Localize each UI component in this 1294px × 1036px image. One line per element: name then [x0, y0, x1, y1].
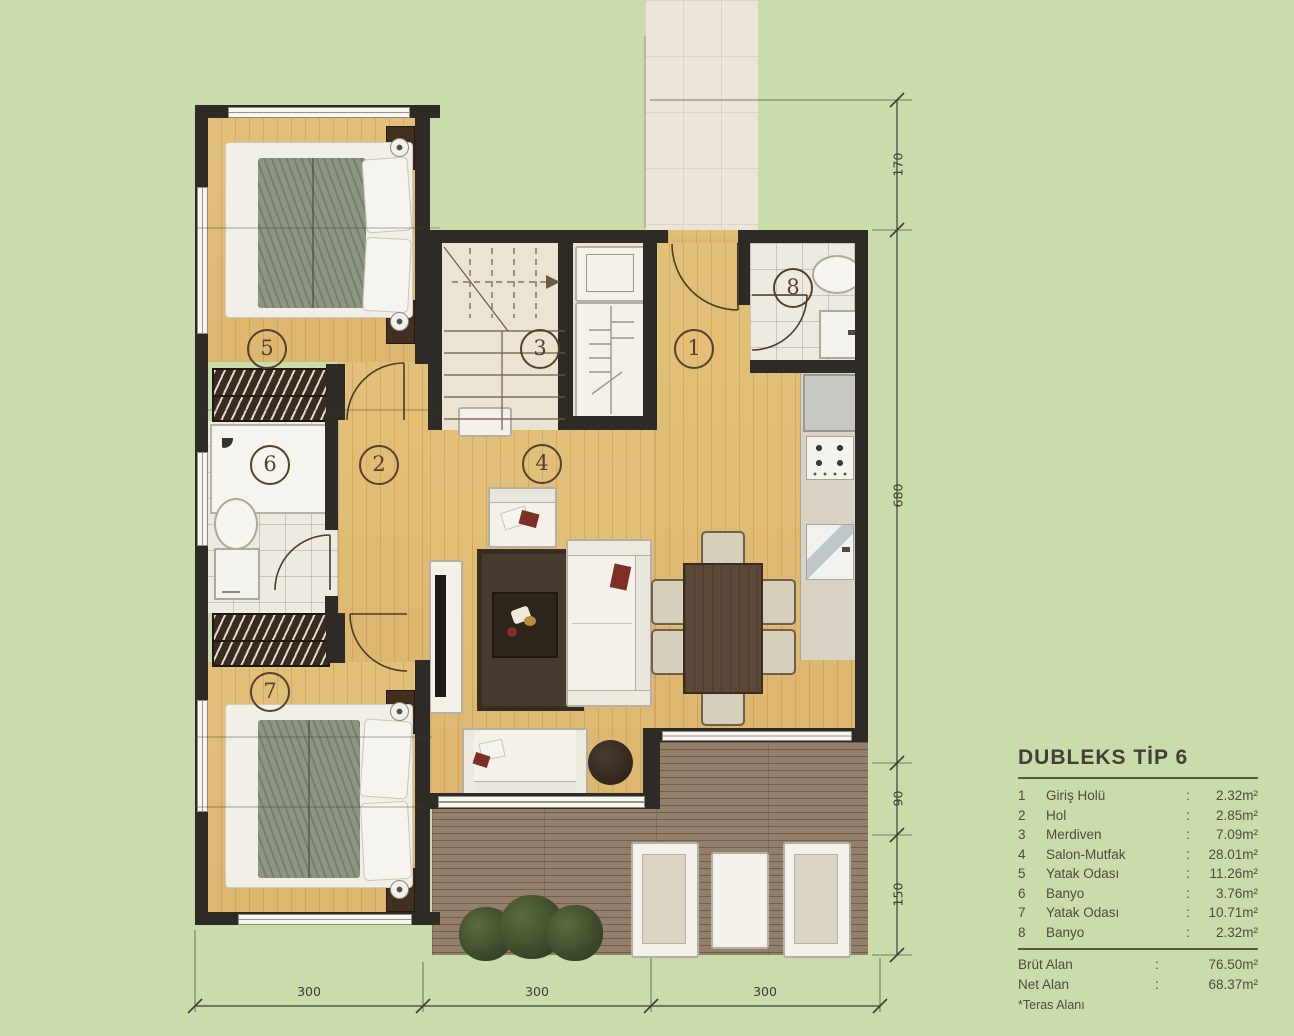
legend-colon: : — [1182, 788, 1194, 803]
floor-plan-canvas: 1 2 3 4 5 6 7 8 170 680 90 150 300 300 3… — [0, 0, 1294, 1036]
dim-label-90: 90 — [891, 784, 906, 814]
legend-row: 3 Merdiven : 7.09m² — [1018, 825, 1258, 845]
wall — [737, 243, 750, 305]
legend-room-num: 2 — [1018, 808, 1046, 823]
legend-room-area: 10.71m² — [1194, 905, 1258, 920]
window — [197, 700, 208, 812]
wall — [325, 420, 338, 530]
sofa-back — [635, 541, 650, 705]
wall — [565, 416, 643, 430]
sun-lounger — [631, 842, 699, 958]
loveseat — [462, 728, 588, 797]
legend-colon: : — [1182, 847, 1194, 862]
window — [238, 914, 412, 925]
legend-total-label: Net Alan — [1018, 977, 1151, 992]
sun-lounger — [783, 842, 851, 958]
legend-colon: : — [1151, 957, 1163, 972]
duvet-fold — [308, 720, 310, 878]
throw-pillow-red — [610, 563, 632, 590]
legend-room-num: 6 — [1018, 886, 1046, 901]
wall — [750, 360, 855, 373]
lamp-icon — [390, 880, 409, 899]
wall — [643, 728, 660, 809]
duvet-bedroom7 — [258, 720, 360, 878]
cooktop — [806, 436, 854, 480]
wardrobe-divider — [214, 640, 328, 642]
lounger-pad — [794, 854, 838, 944]
legend-total-value: 76.50m² — [1163, 957, 1258, 972]
room-circle-3: 3 — [520, 329, 560, 369]
faucet-icon — [842, 547, 850, 552]
legend-room-name: Banyo — [1046, 925, 1182, 940]
sofa-seat-line — [572, 623, 632, 624]
legend-total-value: 68.37m² — [1163, 977, 1258, 992]
legend-rule — [1018, 777, 1258, 779]
legend-colon: : — [1182, 866, 1194, 881]
shower-head-icon — [222, 438, 233, 448]
kitchen-sink — [806, 524, 854, 580]
sun-lounger — [711, 852, 769, 949]
legend-row: 4 Salon-Mutfak : 28.01m² — [1018, 845, 1258, 865]
wall — [855, 230, 868, 742]
legend-room-name: Salon-Mutfak — [1046, 847, 1182, 862]
legend-totals: Brüt Alan : 76.50m² Net Alan : 68.37m² — [1018, 955, 1258, 994]
fridge — [803, 374, 859, 432]
legend-room-num: 4 — [1018, 847, 1046, 862]
legend-total-row: Net Alan : 68.37m² — [1018, 975, 1258, 995]
sofa-arm — [568, 541, 650, 556]
dining-table — [683, 563, 763, 694]
window — [197, 187, 208, 334]
room-circle-1: 1 — [674, 329, 714, 369]
legend-total-row: Brüt Alan : 76.50m² — [1018, 955, 1258, 975]
room-circle-7: 7 — [250, 672, 290, 712]
legend-room-area: 2.85m² — [1194, 808, 1258, 823]
pillow — [362, 237, 412, 313]
sink-bath6 — [214, 548, 260, 600]
loveseat-arm — [576, 730, 586, 795]
entry-threshold — [668, 230, 738, 243]
window — [228, 107, 410, 118]
wardrobe-bedroom5 — [212, 368, 330, 422]
tv-console — [429, 560, 463, 714]
dim-label-170: 170 — [891, 150, 906, 180]
legend-colon: : — [1182, 886, 1194, 901]
faucet-icon — [222, 591, 240, 593]
duvet-bedroom5 — [258, 158, 366, 308]
tv-screen — [435, 575, 446, 697]
legend-row: 6 Banyo : 3.76m² — [1018, 884, 1258, 904]
dim-label-300-b: 300 — [507, 984, 567, 999]
pillow — [359, 718, 412, 799]
legend-colon: : — [1182, 808, 1194, 823]
legend-note: *Teras Alanı — [1018, 998, 1258, 1012]
legend-room-num: 8 — [1018, 925, 1046, 940]
legend-room-area: 7.09m² — [1194, 827, 1258, 842]
room-circle-8: 8 — [773, 268, 813, 308]
wall — [325, 596, 338, 615]
window — [197, 452, 208, 546]
pillow — [361, 156, 412, 233]
legend-room-area: 2.32m² — [1194, 788, 1258, 803]
legend-rule — [1018, 948, 1258, 950]
legend-room-name: Banyo — [1046, 886, 1182, 901]
legend-room-name: Giriş Holü — [1046, 788, 1182, 803]
bush — [547, 905, 603, 961]
room-circle-6: 6 — [250, 445, 290, 485]
lamp-icon — [390, 312, 409, 331]
room-circle-5: 5 — [247, 329, 287, 369]
wall — [428, 243, 442, 430]
lamp-icon — [390, 702, 409, 721]
room-circle-4: 4 — [522, 444, 562, 484]
wall — [415, 660, 430, 912]
legend-room-name: Hol — [1046, 808, 1182, 823]
window — [438, 796, 645, 808]
armchair — [488, 487, 557, 548]
legend-room-name: Merdiven — [1046, 827, 1182, 842]
closet-inner — [586, 254, 634, 292]
legend-room-area: 3.76m² — [1194, 886, 1258, 901]
legend-room-area: 11.26m² — [1194, 866, 1258, 881]
armchair-back — [490, 489, 555, 503]
legend-room-num: 7 — [1018, 905, 1046, 920]
legend-row: 2 Hol : 2.85m² — [1018, 806, 1258, 826]
legend-total-label: Brüt Alan — [1018, 957, 1151, 972]
legend-room-area: 2.32m² — [1194, 925, 1258, 940]
legend-row: 7 Yatak Odası : 10.71m² — [1018, 903, 1258, 923]
wall — [428, 230, 668, 243]
toilet-bath6 — [214, 498, 258, 550]
wardrobe-divider — [214, 395, 328, 397]
legend-colon: : — [1182, 925, 1194, 940]
legend-colon: : — [1182, 827, 1194, 842]
dim-label-680: 680 — [891, 481, 906, 511]
hall-2-floor — [338, 362, 430, 663]
wardrobe-bedroom7 — [212, 613, 330, 667]
legend-colon: : — [1182, 905, 1194, 920]
faucet-icon — [848, 330, 855, 335]
coffee-table — [492, 592, 558, 658]
legend-room-num: 3 — [1018, 827, 1046, 842]
legend-title: DUBLEKS TİP 6 — [1018, 746, 1258, 770]
legend-room-num: 1 — [1018, 788, 1046, 803]
sofa — [566, 539, 652, 707]
dim-label-300-c: 300 — [735, 984, 795, 999]
legend-rows: 1 Giriş Holü : 2.32m² 2 Hol : 2.85m² 3 M… — [1018, 786, 1258, 942]
legend-colon: : — [1151, 977, 1163, 992]
duvet-fold — [312, 158, 314, 308]
legend-room-name: Yatak Odası — [1046, 905, 1182, 920]
stair-landing — [458, 407, 512, 437]
closet-box-upper — [575, 246, 647, 302]
window — [662, 731, 852, 741]
legend-row: 1 Giriş Holü : 2.32m² — [1018, 786, 1258, 806]
legend-row: 5 Yatak Odası : 11.26m² — [1018, 864, 1258, 884]
decor-item — [524, 616, 536, 626]
legend-room-name: Yatak Odası — [1046, 866, 1182, 881]
room-circle-2: 2 — [359, 445, 399, 485]
legend-row: 8 Banyo : 2.32m² — [1018, 923, 1258, 943]
pouf — [588, 740, 633, 785]
legend-room-num: 5 — [1018, 866, 1046, 881]
pillow — [360, 801, 412, 881]
wall — [326, 364, 345, 420]
throw-pillow-red — [518, 510, 539, 528]
lamp-icon — [390, 138, 409, 157]
dim-label-300-a: 300 — [279, 984, 339, 999]
legend-room-area: 28.01m² — [1194, 847, 1258, 862]
dim-label-150: 150 — [891, 880, 906, 910]
lounger-pad — [642, 854, 686, 944]
closet-box-lower — [575, 302, 647, 421]
wall — [738, 230, 868, 243]
wall — [643, 243, 657, 430]
decor-item — [507, 627, 517, 637]
sofa-arm — [568, 690, 650, 705]
legend-panel: DUBLEKS TİP 6 1 Giriş Holü : 2.32m² 2 Ho… — [1018, 746, 1258, 1012]
wall — [558, 243, 573, 430]
entrance-walkway — [645, 0, 758, 230]
wall — [326, 613, 345, 663]
